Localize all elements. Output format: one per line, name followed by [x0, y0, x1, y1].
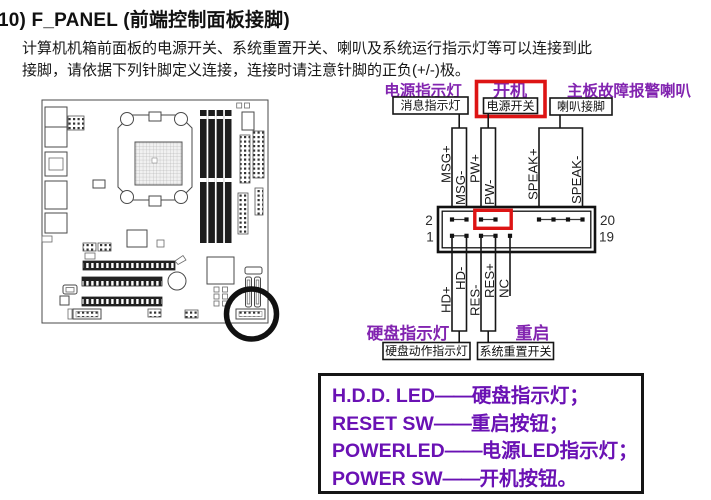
- pin-label-hd-minus: HD-: [453, 267, 468, 290]
- message-led-box-label: 消息指示灯: [400, 98, 460, 113]
- body-text-line1: 计算机机箱前面板的电源开关、系统重置开关、喇叭及系统运行指示灯等可以连接到此: [22, 37, 592, 58]
- legend-line-reset-sw: RESET SW——重启按钮；: [332, 411, 641, 439]
- pin-labels-top: MSG+ MSG- PW+ PW- SPEAK+ SPEAK-: [439, 145, 585, 205]
- legend-line-powerled: POWERLED——电源LED指示灯；: [332, 438, 641, 466]
- pin-label-hd-plus: HD+: [439, 286, 454, 313]
- fpanel-pins: [239, 312, 262, 317]
- pin-label-msg-minus: MSG-: [453, 171, 468, 205]
- pin-label-pw-minus: PW-: [482, 180, 497, 205]
- pin-label-speak-minus: SPEAK-: [569, 156, 584, 204]
- pin-label-pw-plus: PW+: [468, 154, 483, 183]
- pin-label-res-minus: RES-: [468, 284, 483, 316]
- manual-page: 10) F_PANEL (前端控制面板接脚) 计算机机箱前面板的电源开关、系统重…: [0, 0, 711, 500]
- pin-number-19: 19: [599, 230, 614, 245]
- fpanel-header-outline: [438, 207, 595, 252]
- section-title: 10) F_PANEL (前端控制面板接脚): [0, 5, 290, 32]
- legend-box: H.D.D. LED——硬盘指示灯； RESET SW——重启按钮； POWER…: [318, 373, 644, 494]
- legend-line-hdd-led: H.D.D. LED——硬盘指示灯；: [332, 383, 641, 411]
- legend-line-power-sw: POWER SW——开机按钮。: [332, 466, 641, 494]
- pin-labels-bottom: HD+ HD- RES- RES+ NC: [439, 263, 512, 316]
- reset-switch-box-label: 系统重置开关: [479, 345, 551, 359]
- fpanel-wiring-diagram: 电源指示灯 开机 主板故障报警喇叭 消息指示灯 电源开关 喇叭接脚 MSG+ M…: [350, 78, 711, 370]
- atx12v-connector: [68, 116, 84, 130]
- power-switch-box-label: 电源开关: [486, 99, 534, 113]
- pin-number-20: 20: [600, 213, 615, 228]
- rear-io-ports: [42, 107, 67, 242]
- speaker-alarm-label: 主板故障报警喇叭: [567, 81, 692, 100]
- pin-label-res-plus: RES+: [482, 263, 497, 298]
- motherboard-diagram: [30, 90, 310, 355]
- speaker-pins-box-label: 喇叭接脚: [557, 99, 605, 114]
- pin-label-speak-plus: SPEAK+: [526, 148, 541, 200]
- reset-label: 重启: [516, 323, 550, 343]
- hdd-activity-box-label: 硬盘动作指示灯: [385, 344, 468, 358]
- pin-label-nc: NC: [497, 278, 512, 298]
- pin-number-2: 2: [425, 213, 433, 228]
- pin-number-1: 1: [426, 230, 434, 245]
- cpu-socket: [118, 112, 192, 206]
- pin-label-msg-plus: MSG+: [439, 145, 454, 183]
- body-text-line2: 接脚，请依据下列针脚定义连接，连接时请注意针脚的正负(+/-)极。: [22, 59, 470, 80]
- fan-header: [93, 180, 105, 188]
- hdd-led-label: 硬盘指示灯: [367, 323, 450, 343]
